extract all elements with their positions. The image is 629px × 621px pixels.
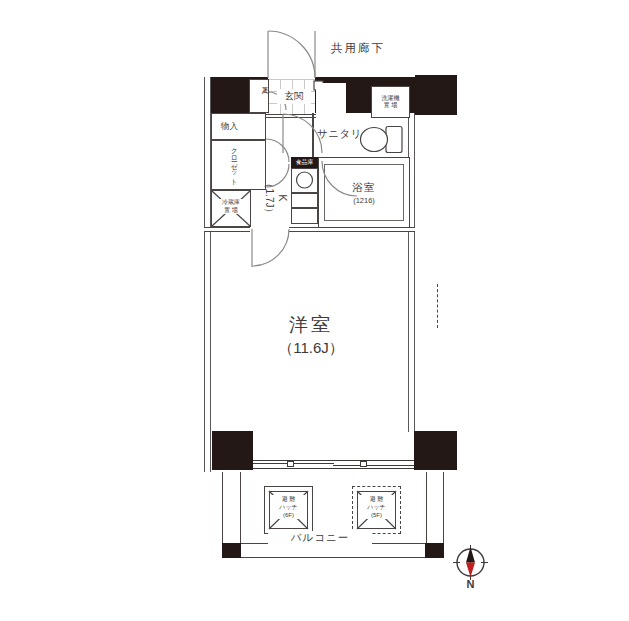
refrigerator-label-line2: 置 場: [222, 207, 240, 215]
sink-bowl-icon: [297, 172, 313, 188]
floorplan-canvas: 共用廊下 玄関 下足入 洗濯機 置 場 サニタリー 物入 クローゼット 冷蔵庫 …: [0, 0, 629, 621]
compass-icon: [453, 545, 488, 580]
balcony-label: バルコニー: [268, 531, 372, 545]
toilet-bowl-icon: [361, 128, 388, 152]
escape-hatch-5f-label: 避 難 ハッチ (5F): [359, 495, 394, 519]
sanitary-door-arc: [283, 114, 322, 153]
entrance-label: 玄関: [277, 89, 311, 104]
basin-background: [316, 83, 346, 114]
closet-door-arc-lower: [266, 164, 289, 187]
washing-machine-label-line2: 置 場: [382, 102, 400, 110]
compass-needle-south: [466, 563, 475, 578]
hatch-6f-line2: ハッチ: [279, 503, 297, 511]
hatch-6f-line1: 避 難: [279, 495, 297, 503]
entrance-door-arc: [268, 31, 315, 78]
refrigerator-label: 冷蔵庫 置 場: [214, 199, 248, 214]
living-room-door-arc: [252, 229, 289, 266]
closet-door-arc-upper: [266, 139, 289, 162]
escape-hatch-6f-label: 避 難 ハッチ (6F): [271, 495, 306, 519]
hatch-5f-line2: ハッチ: [367, 503, 385, 511]
toilet-tank-icon: [386, 127, 402, 153]
washing-machine-space: 洗濯機 置 場: [371, 86, 410, 118]
bathroom-door-arc: [322, 161, 357, 196]
hatch-5f-line3: (5F): [367, 511, 385, 519]
hatch-5f-line1: 避 難: [367, 495, 385, 503]
hatch-6f-line3: (6F): [279, 511, 297, 519]
refrigerator-label-line1: 冷蔵庫: [222, 199, 240, 207]
washing-machine-label-line1: 洗濯機: [382, 95, 400, 103]
pantry-label: 食品庫: [291, 157, 318, 168]
shoe-cabinet: 下足入: [249, 79, 269, 113]
floorplan-linework: [0, 0, 629, 621]
